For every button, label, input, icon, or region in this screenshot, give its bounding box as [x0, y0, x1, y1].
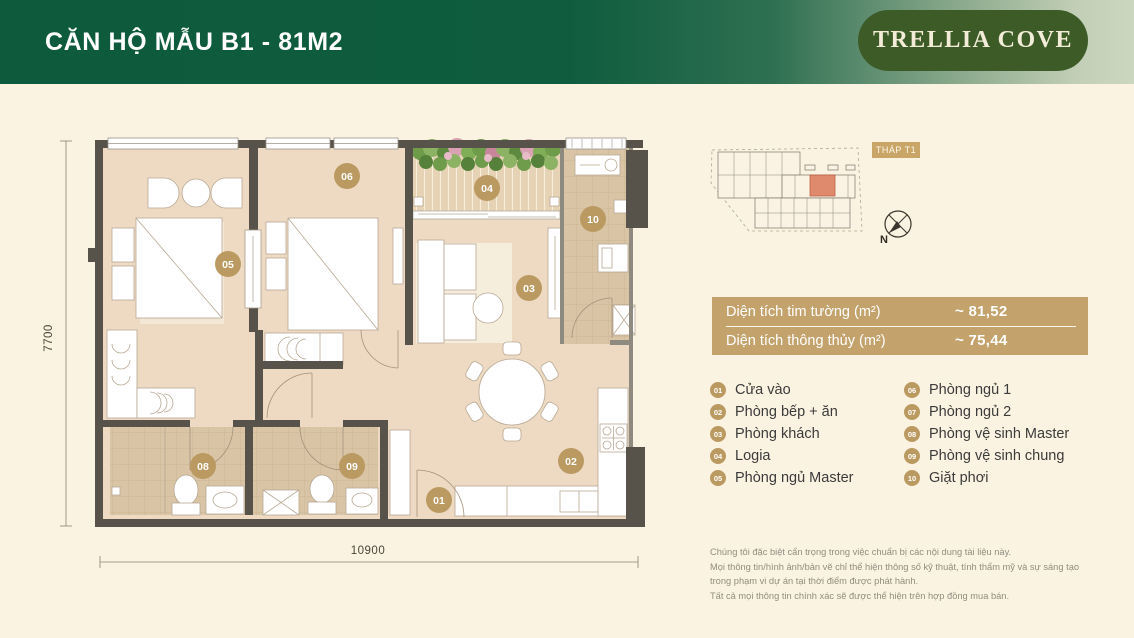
legend-item-03: 03 Phòng khách — [710, 423, 854, 445]
legend-badge-03: 03 — [710, 426, 726, 442]
area-label-gross: Diện tích tim tường (m²) — [726, 304, 955, 320]
svg-text:03: 03 — [523, 283, 535, 295]
plan-marker-08: 08 — [190, 453, 216, 479]
disclaimer-line-1: Chúng tôi đặc biệt cẩn trọng trong việc … — [710, 545, 1134, 560]
disclaimer-line-2: Mọi thông tin/hình ảnh/bản vẽ chỉ thể hi… — [710, 560, 1134, 575]
legend-badge-10: 10 — [904, 470, 920, 486]
disclaimer-line-4: Tất cả mọi thông tin chính xác sẽ được t… — [710, 589, 1134, 604]
floor-plan: 01 02 03 04 05 06 08 09 10 7700 10900 — [30, 115, 680, 585]
svg-text:05: 05 — [222, 259, 234, 271]
area-row-net: Diện tích thông thủy (m²) ~ 75,44 — [712, 326, 1088, 355]
legend-label-03: Phòng khách — [735, 426, 820, 442]
dim-height-label: 7700 — [43, 324, 55, 352]
legend-label-01: Cửa vào — [735, 382, 791, 398]
legend-item-08: 08 Phòng vệ sinh Master — [904, 423, 1069, 445]
svg-text:09: 09 — [346, 461, 358, 473]
svg-text:02: 02 — [565, 456, 577, 468]
plan-marker-10: 10 — [580, 206, 606, 232]
brand-logo-text: TRELLIA COVE — [873, 27, 1073, 54]
legend-label-02: Phòng bếp + ăn — [735, 404, 838, 420]
legend-item-04: 04 Logia — [710, 445, 854, 467]
compass: N — [880, 211, 911, 246]
legend-label-05: Phòng ngủ Master — [735, 470, 854, 486]
tower-label: THÁP T1 — [876, 145, 916, 155]
svg-text:10: 10 — [587, 214, 599, 226]
disclaimer-line-3: trong phạm vi dự án tại thời điểm được p… — [710, 574, 1134, 589]
legend-item-02: 02 Phòng bếp + ăn — [710, 401, 854, 423]
svg-text:04: 04 — [481, 183, 493, 195]
plan-marker-03: 03 — [516, 275, 542, 301]
legend-badge-01: 01 — [710, 382, 726, 398]
legend-label-04: Logia — [735, 448, 770, 464]
plan-marker-01: 01 — [426, 487, 452, 513]
legend-badge-05: 05 — [710, 470, 726, 486]
area-value-net: ~ 75,44 — [955, 332, 1008, 349]
legend-item-01: 01 Cửa vào — [710, 379, 854, 401]
plan-marker-05: 05 — [215, 251, 241, 277]
compass-n-label: N — [880, 234, 888, 246]
legend-label-06: Phòng ngủ 1 — [929, 382, 1011, 398]
area-label-net: Diện tích thông thủy (m²) — [726, 333, 955, 349]
legend-item-07: 07 Phòng ngủ 2 — [904, 401, 1069, 423]
legend-item-09: 09 Phòng vệ sinh chung — [904, 445, 1069, 467]
legend-column-right: 06 Phòng ngủ 1 07 Phòng ngủ 2 08 Phòng v… — [904, 379, 1069, 489]
plan-marker-04: 04 — [474, 175, 500, 201]
area-value-gross: ~ 81,52 — [955, 303, 1008, 320]
legend-label-10: Giặt phơi — [929, 470, 988, 486]
tower-label-badge: THÁP T1 — [872, 142, 920, 158]
legend-badge-06: 06 — [904, 382, 920, 398]
highlighted-unit — [810, 175, 835, 196]
legend-badge-08: 08 — [904, 426, 920, 442]
svg-text:08: 08 — [197, 461, 209, 473]
legend-column-left: 01 Cửa vào 02 Phòng bếp + ăn 03 Phòng kh… — [710, 379, 854, 489]
legend-badge-04: 04 — [710, 448, 726, 464]
legend-label-08: Phòng vệ sinh Master — [929, 426, 1069, 442]
plan-marker-09: 09 — [339, 453, 365, 479]
header-bar: CĂN HỘ MẪU B1 - 81M2 TRELLIA COVE — [0, 0, 1134, 84]
plan-marker-06: 06 — [334, 163, 360, 189]
brand-logo-badge: TRELLIA COVE — [858, 10, 1088, 71]
area-table-divider — [726, 326, 1076, 327]
svg-text:01: 01 — [433, 495, 445, 507]
legend-item-06: 06 Phòng ngủ 1 — [904, 379, 1069, 401]
legend-badge-02: 02 — [710, 404, 726, 420]
legend-label-07: Phòng ngủ 2 — [929, 404, 1011, 420]
disclaimer: Chúng tôi đặc biệt cẩn trọng trong việc … — [710, 545, 1134, 603]
svg-text:06: 06 — [341, 171, 353, 183]
legend-badge-09: 09 — [904, 448, 920, 464]
page-title: CĂN HỘ MẪU B1 - 81M2 — [45, 0, 343, 84]
plan-marker-02: 02 — [558, 448, 584, 474]
legend-label-09: Phòng vệ sinh chung — [929, 448, 1064, 464]
legend-badge-07: 07 — [904, 404, 920, 420]
area-row-gross: Diện tích tim tường (m²) ~ 81,52 — [712, 297, 1088, 326]
dim-width-label: 10900 — [351, 545, 385, 557]
legend-item-10: 10 Giặt phơi — [904, 467, 1069, 489]
legend-item-05: 05 Phòng ngủ Master — [710, 467, 854, 489]
area-table: Diện tích tim tường (m²) ~ 81,52 Diện tí… — [712, 297, 1088, 355]
